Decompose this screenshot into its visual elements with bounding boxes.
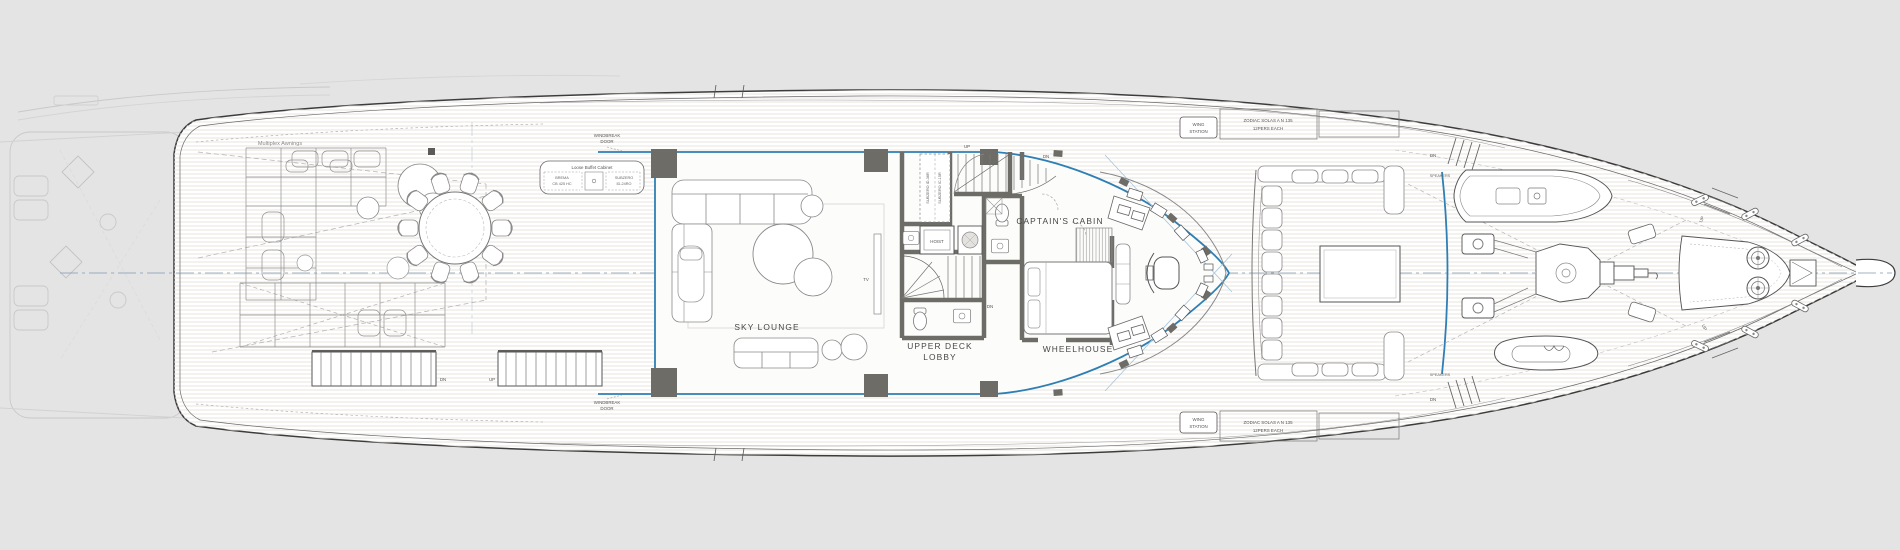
buffet-fridge-brand: BREMA [555, 176, 569, 180]
svg-text:STATION: STATION [1189, 424, 1207, 429]
up-label: UP [489, 377, 495, 382]
buffet-fridge-model: CB 425 HC [552, 182, 571, 186]
hoist: HOIST [920, 226, 954, 254]
speakers-label-top: SPEAKERS [1430, 174, 1451, 178]
tv-cabinet [874, 234, 881, 314]
dn-label: DN [1430, 397, 1436, 402]
aft-overhang-faint [0, 132, 186, 418]
buffet-freezer-model: ID-24RO [617, 182, 632, 186]
pantry-fridge-label: SUBZERO ID-36R [926, 172, 930, 204]
svg-text:STATION: STATION [1189, 129, 1207, 134]
windbreak-bottom-line1: WINDBREAK [594, 400, 621, 405]
lounge-table-small [794, 258, 832, 296]
capstan [1747, 277, 1769, 299]
jet-ski [1495, 336, 1598, 370]
pantry-icemaker-label: SUBZERO IC-15R [938, 172, 942, 204]
dn-label: DN [987, 304, 993, 309]
svg-text:WING: WING [1193, 122, 1206, 127]
svg-text:ZODIAC SOLAS A N 135: ZODIAC SOLAS A N 135 [1243, 118, 1293, 123]
up-label: UP [964, 144, 970, 149]
svg-text:ZODIAC SOLAS A N 135: ZODIAC SOLAS A N 135 [1243, 420, 1293, 425]
wheelhouse-label: WHEELHOUSE [1043, 344, 1114, 354]
buffet-freezer-brand: SUBZERO [615, 176, 633, 180]
anchor-hatch [1790, 260, 1816, 286]
tender [1454, 170, 1612, 222]
pilothouse-settee [1116, 244, 1130, 304]
svg-text:12PERS EACH: 12PERS EACH [1253, 428, 1283, 433]
capstan [1747, 247, 1769, 269]
yacht-deck-plan: Multiplex Awnings [0, 0, 1900, 550]
buffet-cabinet: Loose Buffet Cabinet BREMA CB 425 HC SUB… [540, 161, 644, 194]
deck-plan-drawing: Multiplex Awnings [0, 0, 1900, 550]
helm-chair [1146, 253, 1179, 293]
wing-station-bottom: WING STATION [1180, 412, 1217, 433]
speakers-label-bottom: SPEAKERS [1430, 373, 1451, 377]
deck-socket [428, 148, 435, 155]
windbreak-top-line2: DOOR [600, 139, 613, 144]
dn-label: DN [440, 377, 446, 382]
multiplex-awnings-label: Multiplex Awnings [258, 141, 303, 147]
captains-bed [1024, 262, 1112, 334]
pouf [387, 257, 409, 279]
hoist-label: HOIST [930, 239, 944, 244]
captains-cabin-label: CAPTAIN'S CABIN [1016, 216, 1103, 226]
svg-text:WING: WING [1193, 417, 1206, 422]
pouf-small [297, 255, 313, 271]
wardrobe [1076, 228, 1112, 262]
svg-text:12PERS EACH: 12PERS EACH [1253, 126, 1283, 131]
windbreak-top-line1: WINDBREAK [594, 133, 621, 138]
dn-label: DN [1043, 154, 1049, 159]
buffet-title: Loose Buffet Cabinet [572, 165, 614, 170]
lobby-label-line1: UPPER DECK [907, 341, 972, 351]
dumbwaiter [958, 226, 982, 254]
foredeck-table [1320, 246, 1400, 302]
lobby-label-line2: LOBBY [923, 352, 956, 362]
wing-station-top: WING STATION [1180, 117, 1217, 138]
sky-lounge-label: SKY LOUNGE [734, 322, 799, 332]
round-chair [801, 195, 823, 217]
windbreak-bottom-line2: DOOR [600, 406, 613, 411]
pantry-sink [903, 232, 919, 245]
tv-label: TV [863, 277, 869, 282]
pantry: SUBZERO ID-36R SUBZERO IC-15R [920, 154, 950, 222]
dn-label: DN [1430, 153, 1436, 158]
side-table [357, 197, 379, 219]
